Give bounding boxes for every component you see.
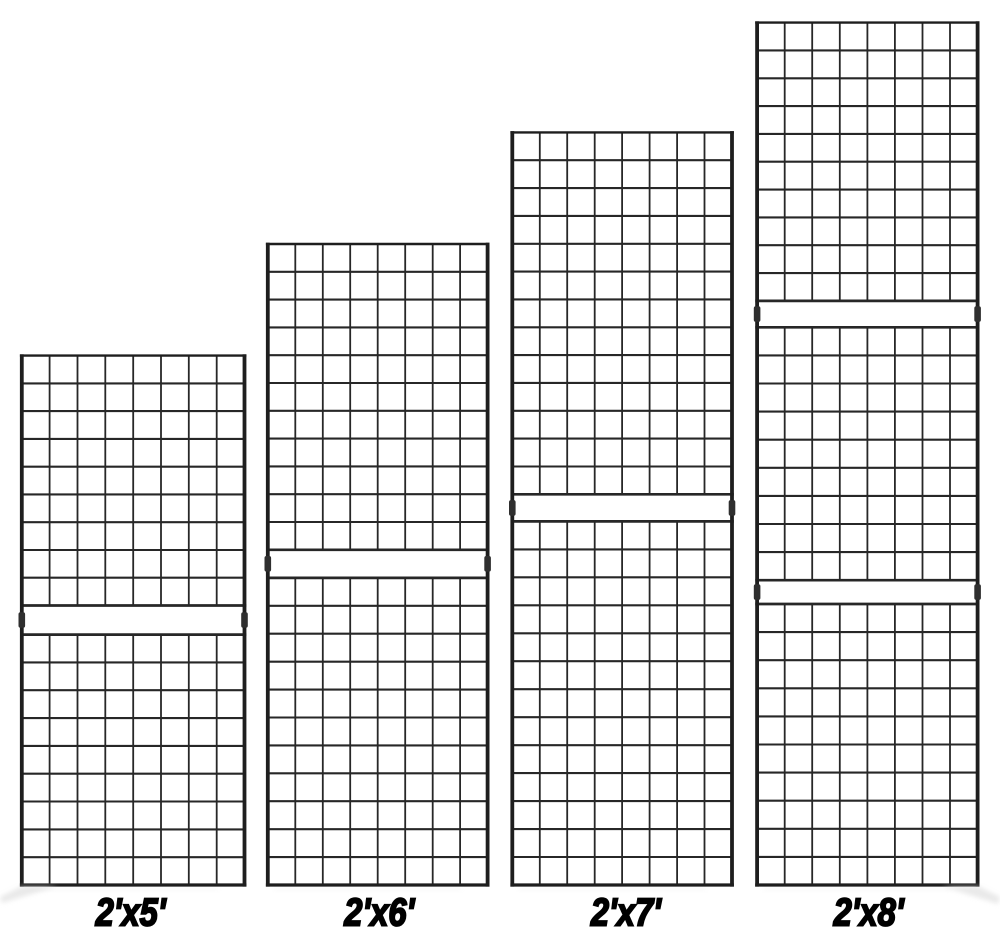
svg-text:2'x6': 2'x6' <box>343 892 415 935</box>
svg-text:2'x5': 2'x5' <box>95 892 167 935</box>
svg-text:2'x7': 2'x7' <box>590 892 662 935</box>
svg-text:2'x8': 2'x8' <box>833 892 905 935</box>
